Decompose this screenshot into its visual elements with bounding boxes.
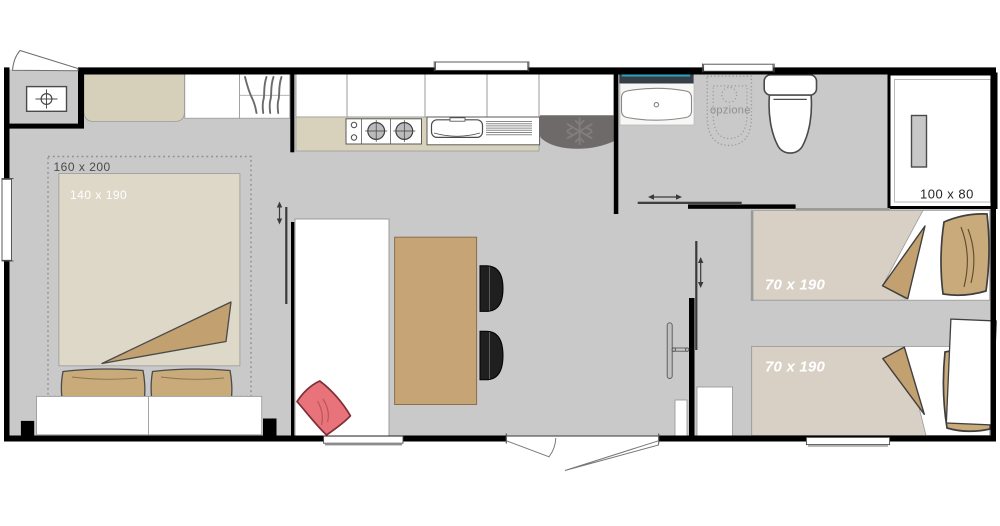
svg-text:100 x 80: 100 x 80 <box>920 187 974 202</box>
svg-text:140 x 190: 140 x 190 <box>70 188 127 202</box>
svg-text:70 x 190: 70 x 190 <box>765 359 825 376</box>
svg-text:160 x 200: 160 x 200 <box>54 160 111 174</box>
svg-text:70 x 190: 70 x 190 <box>765 277 825 294</box>
svg-text:opzione: opzione <box>710 105 751 117</box>
